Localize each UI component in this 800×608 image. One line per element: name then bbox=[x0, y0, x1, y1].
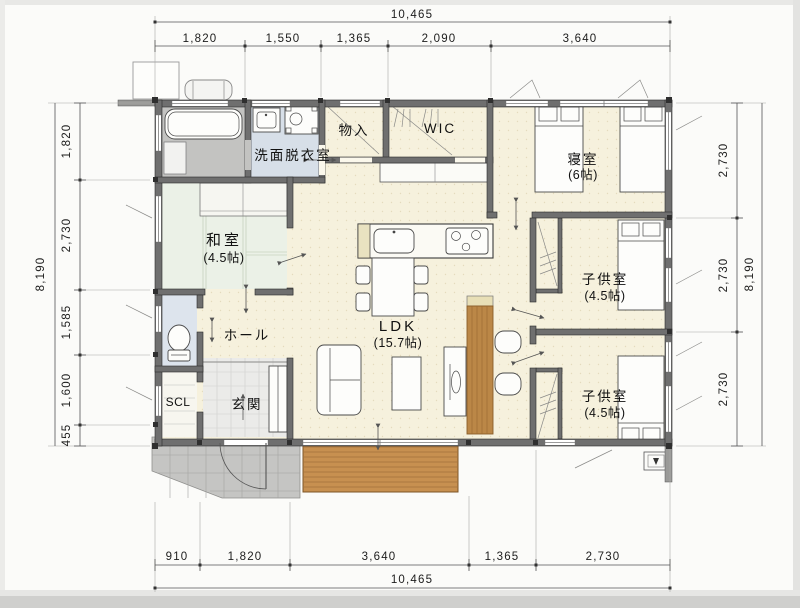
wic-label: WIC bbox=[424, 121, 456, 136]
window-top-bedroom-2 bbox=[560, 101, 648, 106]
dim-bottom-5: 2,730 bbox=[586, 551, 621, 563]
window-left-scl bbox=[156, 386, 161, 416]
bedroom-label: 寝室 bbox=[568, 151, 599, 167]
oshiire-closet bbox=[200, 183, 287, 216]
window-bottom-living bbox=[303, 440, 458, 445]
window-left-washitsu bbox=[156, 196, 161, 242]
window-top-washroom bbox=[252, 101, 290, 106]
window-top-bath bbox=[172, 101, 228, 106]
kids-room-2-size: (4.5帖) bbox=[584, 405, 625, 420]
window-right-kids2-b bbox=[666, 386, 671, 432]
japanese-room-size: (4.5帖) bbox=[203, 250, 244, 265]
window-right-kids1-b bbox=[666, 268, 671, 302]
toilet bbox=[168, 325, 190, 361]
dim-left-total: 8,190 bbox=[35, 257, 47, 292]
dim-left-2: 2,730 bbox=[61, 218, 73, 253]
storage-label: 物入 bbox=[339, 123, 370, 138]
dim-left-3: 1,585 bbox=[61, 305, 73, 340]
kids-room-1-label: 子供室 bbox=[582, 271, 629, 287]
dim-top-5: 3,640 bbox=[563, 33, 598, 45]
outdoor-faucet bbox=[644, 452, 668, 470]
study-counter bbox=[467, 296, 493, 434]
dim-bottom-4: 1,365 bbox=[485, 551, 520, 563]
water-heater-tank bbox=[133, 62, 179, 99]
washroom-label: 洗面脱衣室 bbox=[254, 147, 332, 163]
dim-top-3: 1,365 bbox=[337, 33, 372, 45]
shoe-cabinet bbox=[269, 366, 287, 432]
dim-bottom-total: 10,465 bbox=[391, 574, 433, 586]
tv-board bbox=[444, 347, 466, 416]
vanity-sink bbox=[253, 108, 280, 132]
window-bottom-corridor bbox=[545, 440, 575, 445]
kids-room-1-size: (4.5帖) bbox=[584, 288, 625, 303]
dim-bottom-3: 3,640 bbox=[362, 551, 397, 563]
floor-plan-drawing: 洗面脱衣室 物入 WIC 寝室 (6帖) 和室 (4.5帖) LDK (15.7… bbox=[0, 0, 800, 608]
bedroom-size: (6帖) bbox=[568, 167, 598, 182]
dim-top-4: 2,090 bbox=[422, 33, 457, 45]
dim-top-2: 1,550 bbox=[266, 33, 301, 45]
window-top-storage bbox=[340, 101, 380, 106]
kitchen-island bbox=[358, 224, 493, 258]
dim-right-3: 2,730 bbox=[718, 372, 730, 407]
bedroom-bed-2 bbox=[620, 104, 666, 192]
dim-left-1: 1,820 bbox=[61, 124, 73, 159]
dim-right-total: 8,190 bbox=[744, 257, 756, 292]
entrance-label: 玄関 bbox=[232, 396, 263, 412]
dim-left-5: 455 bbox=[61, 424, 73, 447]
washing-machine bbox=[285, 105, 318, 134]
coffee-table bbox=[392, 357, 421, 410]
dim-left-4: 1,600 bbox=[61, 373, 73, 408]
dim-right-2: 2,730 bbox=[718, 258, 730, 293]
dim-top-total: 10,465 bbox=[391, 9, 433, 21]
entrance-door-gap bbox=[224, 440, 268, 445]
window-top-bedroom-1 bbox=[506, 101, 548, 106]
sofa bbox=[317, 345, 361, 415]
ldk-size: (15.7帖) bbox=[374, 335, 423, 350]
window-right-kids2-a bbox=[666, 342, 671, 372]
window-right-kids1-a bbox=[666, 228, 671, 258]
window-left-bath bbox=[156, 115, 161, 151]
scl-label: SCL bbox=[166, 395, 191, 409]
window-left-toilet bbox=[156, 306, 161, 332]
kids-room-2-label: 子供室 bbox=[582, 388, 629, 404]
dim-right-1: 2,730 bbox=[718, 143, 730, 178]
window-right-bedroom bbox=[666, 112, 671, 170]
dim-bottom-1: 910 bbox=[166, 551, 189, 563]
japanese-room-label: 和室 bbox=[206, 232, 242, 249]
dim-bottom-2: 1,820 bbox=[228, 551, 263, 563]
dim-top-1: 1,820 bbox=[183, 33, 218, 45]
floor-plan-page: 洗面脱衣室 物入 WIC 寝室 (6帖) 和室 (4.5帖) LDK (15.7… bbox=[0, 0, 800, 608]
hall-label: ホール bbox=[224, 328, 271, 343]
kitchen-back-cabinet bbox=[380, 163, 490, 182]
ldk-label: LDK bbox=[379, 318, 417, 335]
heat-pump-unit bbox=[185, 80, 232, 100]
